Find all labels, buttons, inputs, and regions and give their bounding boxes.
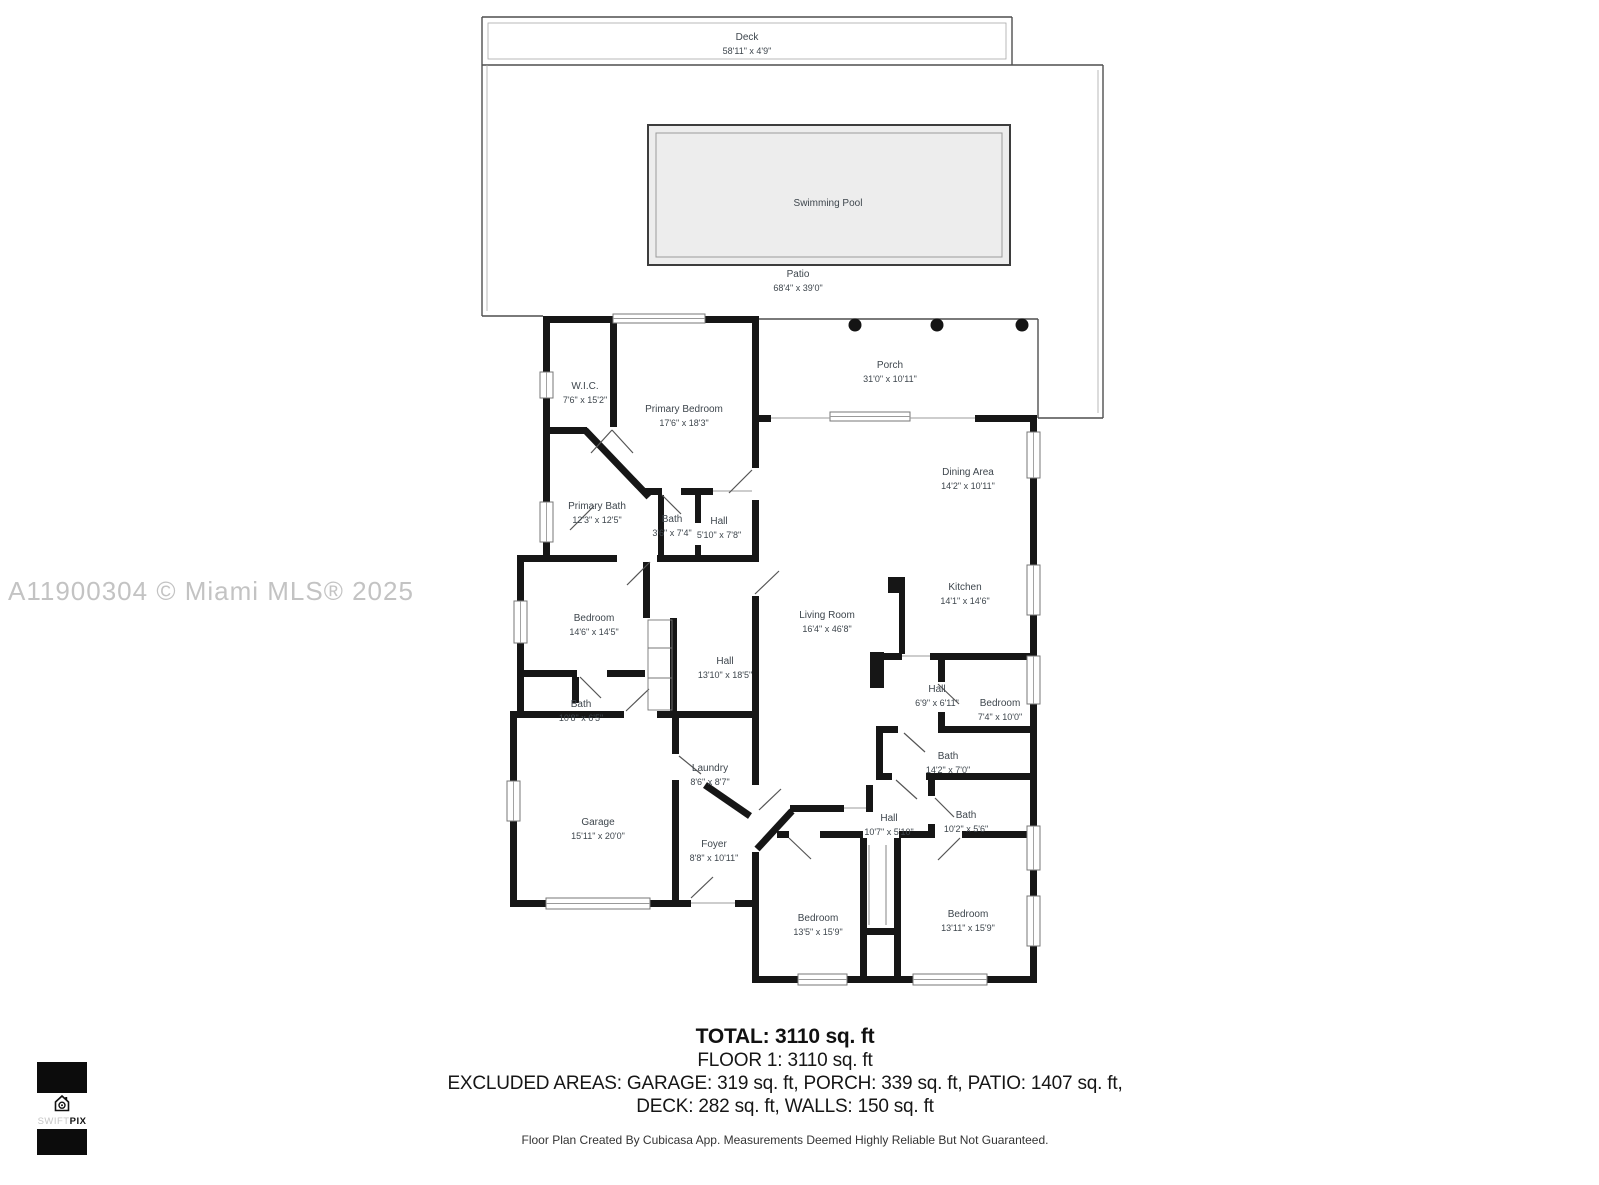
windows-layer	[507, 314, 1040, 985]
walls-layer	[510, 316, 1037, 983]
door-leaves	[570, 430, 960, 898]
summary-total: TOTAL: 3110 sq. ft	[285, 1024, 1285, 1049]
logo-brand-light: SWIFT	[38, 1116, 70, 1127]
area-summary: TOTAL: 3110 sq. ft FLOOR 1: 3110 sq. ft …	[285, 1024, 1285, 1147]
porch-columns	[849, 319, 1029, 332]
summary-excluded-1: EXCLUDED AREAS: GARAGE: 319 sq. ft, PORC…	[285, 1072, 1285, 1095]
logo-top-bar	[37, 1062, 87, 1093]
swiftpix-house-icon	[52, 1094, 72, 1112]
swimming-pool-shape	[648, 125, 1010, 265]
summary-disclaimer: Floor Plan Created By Cubicasa App. Meas…	[285, 1133, 1285, 1147]
summary-excluded-2: DECK: 282 sq. ft, WALLS: 150 sq. ft	[285, 1095, 1285, 1118]
summary-floor1: FLOOR 1: 3110 sq. ft	[285, 1049, 1285, 1072]
closet-details	[648, 620, 886, 925]
mls-watermark: A11900304 © Miami MLS® 2025	[8, 576, 414, 607]
floor-plan-canvas: Deck 58'11" x 4'9" Swimming Pool Patio 6…	[0, 0, 1599, 1185]
logo-bottom-bar	[37, 1129, 87, 1155]
logo-brand-bold: PIX	[70, 1116, 87, 1127]
swiftpix-logo: SWIFTPIX	[34, 1062, 90, 1155]
